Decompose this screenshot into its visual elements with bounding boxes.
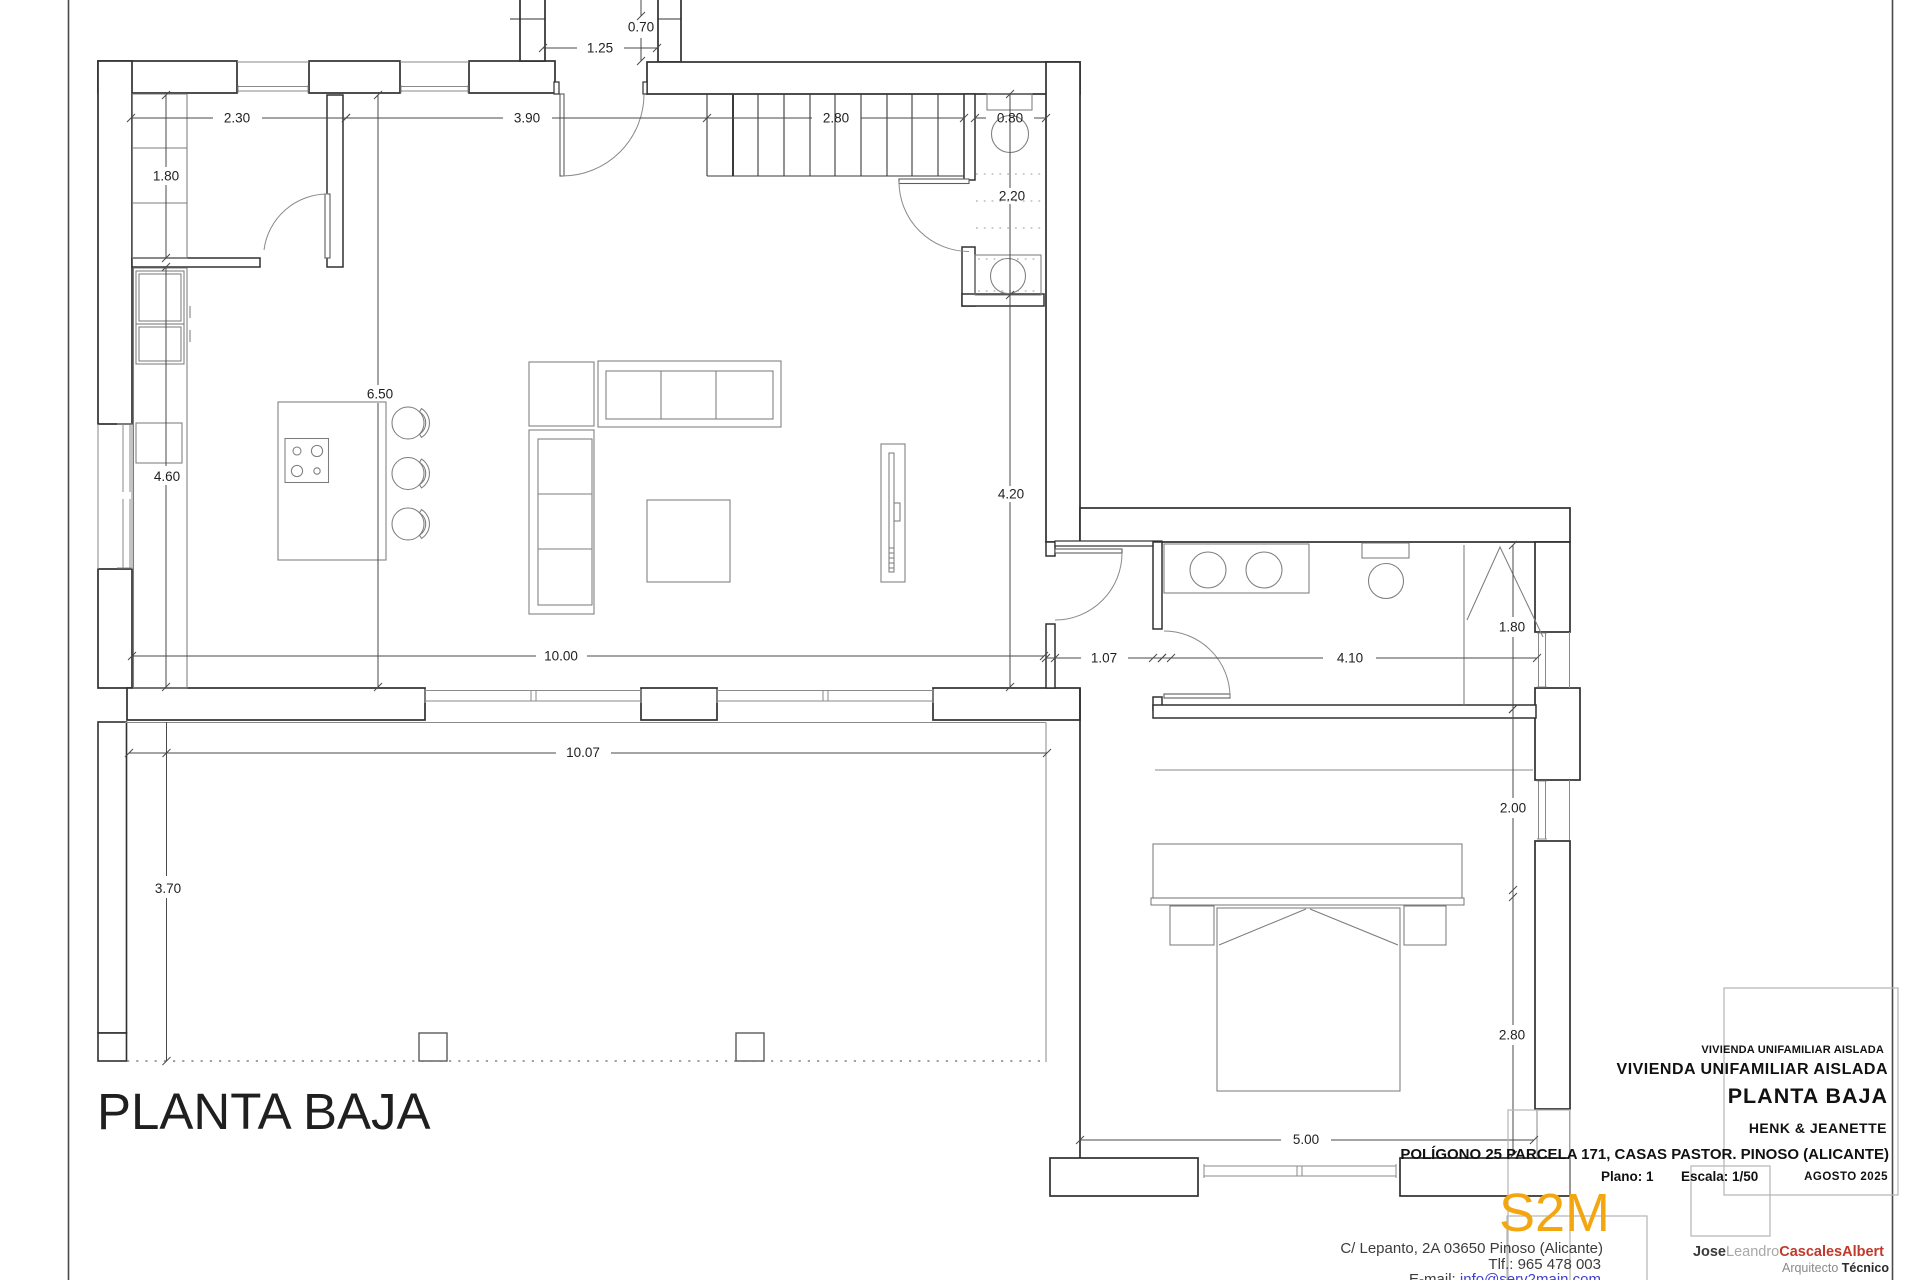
svg-text:3.90: 3.90 [514, 111, 540, 126]
svg-text:5.00: 5.00 [1293, 1132, 1319, 1147]
svg-text:Escala: 1/50: Escala: 1/50 [1681, 1169, 1758, 1184]
svg-text:2.80: 2.80 [823, 111, 849, 126]
svg-text:1.25: 1.25 [587, 41, 613, 56]
svg-text:10.07: 10.07 [566, 745, 600, 760]
svg-text:3.70: 3.70 [155, 881, 181, 896]
svg-text:6.50: 6.50 [367, 387, 393, 402]
svg-text:AGOSTO 2025: AGOSTO 2025 [1804, 1171, 1888, 1183]
svg-text:0.70: 0.70 [628, 20, 654, 35]
svg-text:E-mail: info@serv2main.com: E-mail: info@serv2main.com [1409, 1271, 1601, 1280]
svg-text:VIVIENDA UNIFAMILIAR AISLADA: VIVIENDA UNIFAMILIAR AISLADA [1701, 1044, 1884, 1056]
svg-text:1.80: 1.80 [153, 169, 179, 184]
svg-text:PLANTA BAJA: PLANTA BAJA [97, 1083, 431, 1140]
svg-text:10.00: 10.00 [544, 649, 578, 664]
svg-text:C/ Lepanto, 2A 03650 Pinoso (A: C/ Lepanto, 2A 03650 Pinoso (Alicante) [1340, 1240, 1603, 1257]
svg-text:Plano: 1: Plano: 1 [1601, 1169, 1654, 1184]
svg-text:POLÍGONO 25 PARCELA 171, CASAS: POLÍGONO 25 PARCELA 171, CASAS PASTOR. P… [1400, 1146, 1889, 1163]
svg-text:0.80: 0.80 [997, 111, 1023, 126]
svg-text:JoseLeandroCascalesAlbert: JoseLeandroCascalesAlbert [1693, 1244, 1884, 1260]
svg-text:2.30: 2.30 [224, 111, 250, 126]
svg-text:PLANTA BAJA: PLANTA BAJA [1728, 1084, 1888, 1108]
svg-text:VIVIENDA UNIFAMILIAR AISLADA: VIVIENDA UNIFAMILIAR AISLADA [1617, 1061, 1888, 1078]
svg-text:1.07: 1.07 [1091, 651, 1117, 666]
svg-text:Arquitecto Técnico: Arquitecto Técnico [1782, 1261, 1889, 1275]
svg-text:4.60: 4.60 [154, 469, 180, 484]
svg-text:HENK & JEANETTE: HENK & JEANETTE [1749, 1120, 1887, 1136]
svg-text:2.20: 2.20 [999, 189, 1025, 204]
svg-text:4.10: 4.10 [1337, 651, 1363, 666]
svg-text:2.00: 2.00 [1500, 801, 1526, 816]
svg-text:S2M: S2M [1499, 1183, 1610, 1243]
svg-text:2.80: 2.80 [1499, 1028, 1525, 1043]
svg-text:4.20: 4.20 [998, 487, 1024, 502]
svg-text:1.80: 1.80 [1499, 620, 1525, 635]
